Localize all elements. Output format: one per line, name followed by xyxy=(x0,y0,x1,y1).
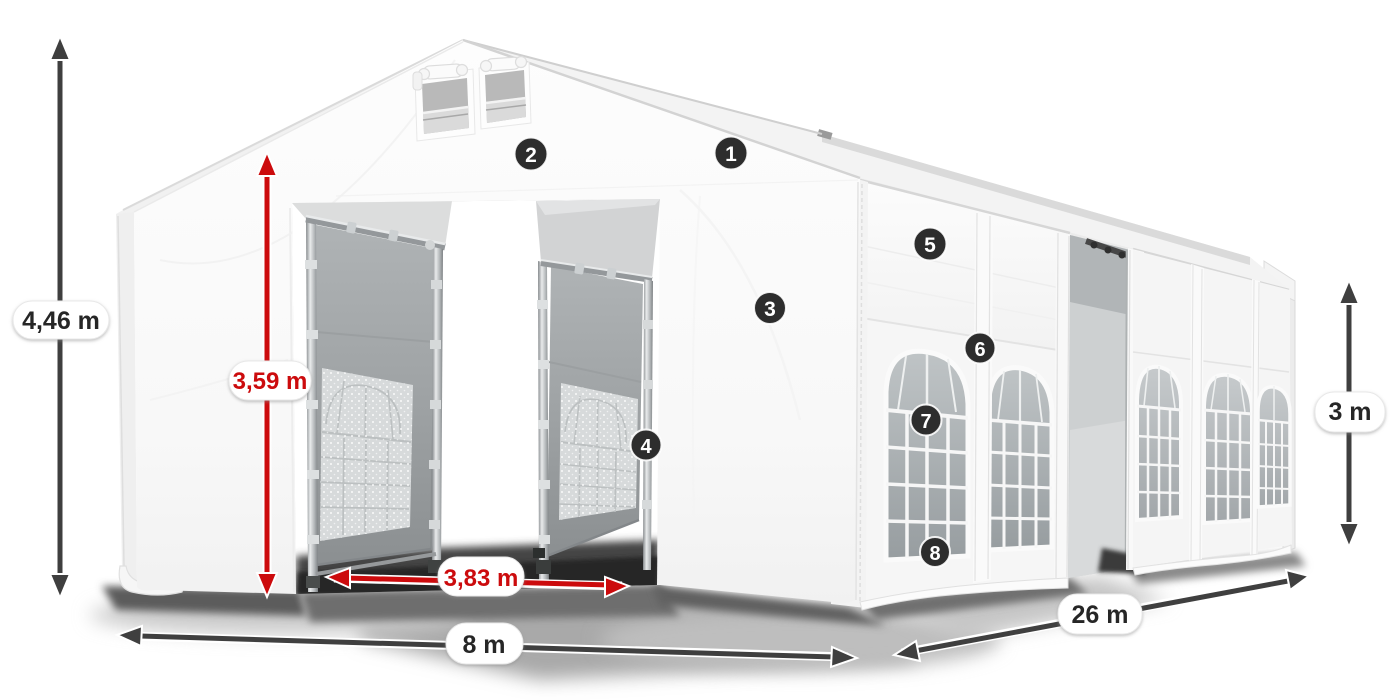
svg-text:2: 2 xyxy=(525,144,537,167)
svg-text:8: 8 xyxy=(929,543,940,565)
svg-text:1: 1 xyxy=(725,143,737,166)
svg-text:3,83 m: 3,83 m xyxy=(444,565,519,592)
svg-text:6: 6 xyxy=(974,339,985,361)
svg-text:26 m: 26 m xyxy=(1072,601,1129,629)
svg-text:4: 4 xyxy=(640,436,652,458)
svg-text:5: 5 xyxy=(924,234,936,257)
svg-text:3: 3 xyxy=(764,298,776,321)
svg-text:7: 7 xyxy=(920,411,931,433)
svg-text:4,46 m: 4,46 m xyxy=(22,307,100,335)
svg-text:3,59 m: 3,59 m xyxy=(233,368,308,395)
svg-text:3 m: 3 m xyxy=(1328,398,1371,426)
svg-text:8 m: 8 m xyxy=(462,631,505,659)
